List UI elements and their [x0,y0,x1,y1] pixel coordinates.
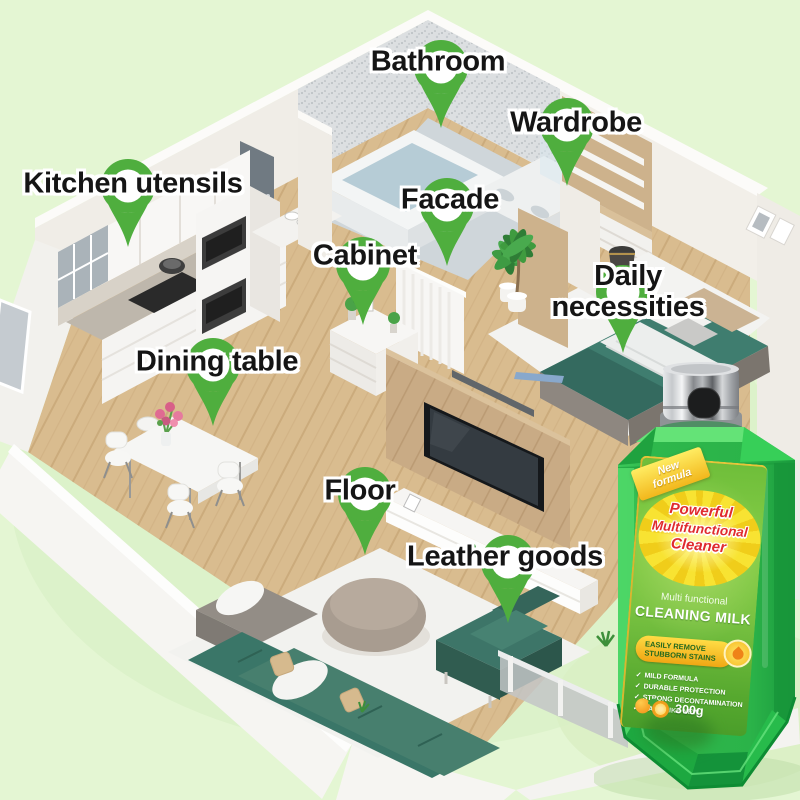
pin-label-cabinet: Cabinet [313,241,417,272]
check-icon: ✓ [634,683,640,690]
pin-label-daily-necessities: Daily necessities [538,261,718,323]
pin-label-leather-goods: Leather goods [407,542,603,573]
pin-label-wardrobe: Wardrobe [510,108,642,139]
droplet-icon [730,646,746,662]
ribbon-text: New formula [642,455,698,493]
pin-label-kitchen-utensils: Kitchen utensils [23,169,242,200]
advert-canvas: Bathroom Wardrobe Kitchen utensils Facad… [0,0,800,800]
product-label: New formula Powerful Multifunctional Cle… [620,455,768,736]
pin-label-floor: Floor [325,476,396,507]
product-bottle: New formula Powerful Multifunctional Cle… [594,350,800,800]
fruit-weight-row: 300g [634,695,704,721]
bottle-cap [660,362,742,430]
pin-label-bathroom: Bathroom [371,47,506,78]
pin-label-facade: Facade [401,185,499,216]
remove-stains-badge: EASILY REMOVE STUBBORN STAINS [635,635,735,669]
check-icon: ✓ [635,672,641,679]
net-weight: 300g [675,701,705,717]
pin-label-dining-table: Dining table [136,347,298,378]
product-headline: Powerful Multifunctional Cleaner [635,497,764,560]
